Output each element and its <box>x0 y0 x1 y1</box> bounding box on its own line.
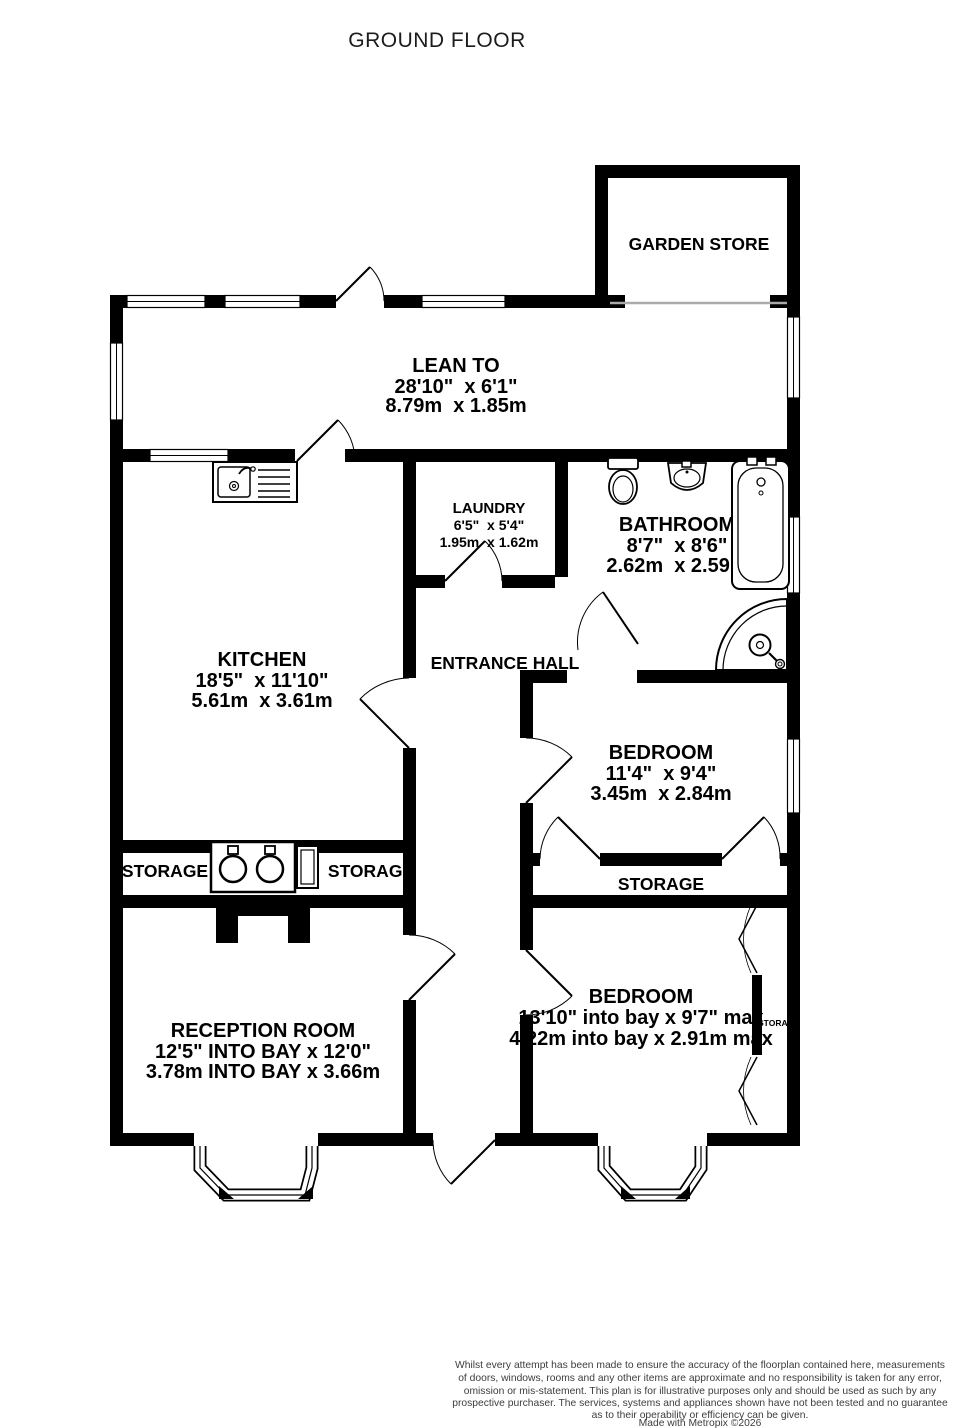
footer-credit: Made with Metropix ©2026 <box>639 1418 762 1428</box>
room-label-bedroom-2: BEDROOM <box>589 986 693 1008</box>
room-label-garden-store: GARDEN STORE <box>629 234 770 254</box>
bedroom-bay-window <box>604 1146 701 1199</box>
window <box>150 450 228 462</box>
door-swing-reception <box>409 935 455 1000</box>
window <box>422 296 505 308</box>
room-label-storage-landing: STORAGE <box>618 874 704 894</box>
door-swing-bedroom-1 <box>526 738 572 803</box>
room-dim-bathroom-imperial: 8'7" x 8'6" <box>627 535 728 557</box>
room-label-storage-left: STORAGE <box>122 861 208 881</box>
window <box>111 343 123 420</box>
toilet-icon <box>608 458 638 504</box>
door-swing-storage-left <box>540 817 600 859</box>
room-label-bedroom-1: BEDROOM <box>609 742 713 764</box>
window <box>788 317 800 398</box>
room-dim-lean-to-metric: 8.79m x 1.85m <box>385 395 526 417</box>
page-title: GROUND FLOOR <box>348 29 526 52</box>
window <box>788 739 800 813</box>
fireplace-icon <box>216 907 310 943</box>
room-dim-bedroom-1-imperial: 11'4" x 9'4" <box>606 763 717 785</box>
bathtub-icon <box>732 457 789 589</box>
room-dim-bedroom-2-imperial: 13'10" into bay x 9'7" max <box>518 1007 763 1029</box>
window <box>127 296 205 308</box>
room-dim-reception-imperial: 12'5" INTO BAY x 12'0" <box>155 1041 371 1063</box>
room-label-bathroom: BATHROOM <box>619 514 735 536</box>
room-dim-laundry-metric: 1.95m x 1.62m <box>440 534 539 550</box>
door-swing-bedroom-2 <box>526 950 572 1015</box>
footer-line-3: omission or mis-statement. This plan is … <box>464 1386 937 1397</box>
room-label-storage-closet: STORAGE <box>758 1018 800 1028</box>
door-swing-bathroom <box>577 592 638 650</box>
cooker-icon <box>211 842 318 892</box>
footer-line-4: prospective purchaser. The services, sys… <box>452 1398 948 1409</box>
shower-icon <box>716 599 787 670</box>
room-dim-bedroom-2-metric: 4.22m into bay x 2.91m max <box>509 1028 772 1050</box>
room-label-entrance-hall: ENTRANCE HALL <box>431 653 580 673</box>
room-label-kitchen: KITCHEN <box>218 649 307 671</box>
bifold-door-bottom <box>739 1057 757 1125</box>
room-dim-kitchen-metric: 5.61m x 3.61m <box>191 690 332 712</box>
room-dim-bedroom-1-metric: 3.45m x 2.84m <box>590 783 731 805</box>
footer-line-1: Whilst every attempt has been made to en… <box>455 1360 945 1371</box>
sink-icon <box>213 462 297 502</box>
floorplan-svg: GROUND FLOOR GARDEN STORE LEAN TO 28'10"… <box>0 0 980 1428</box>
room-dim-bathroom-metric: 2.62m x 2.59m <box>606 555 747 577</box>
window <box>225 296 300 308</box>
room-label-storage-right: STORAGE <box>328 861 414 881</box>
basin-icon <box>668 461 706 490</box>
door-swing-lean-to-exterior <box>336 267 384 301</box>
room-label-reception: RECEPTION ROOM <box>171 1020 355 1042</box>
room-label-lean-to: LEAN TO <box>412 355 499 377</box>
door-swing-kitchen-hall <box>360 678 409 748</box>
room-label-laundry: LAUNDRY <box>453 500 526 517</box>
front-door-swing <box>433 1140 495 1184</box>
reception-bay-window <box>200 1146 313 1199</box>
footer-line-2: of doors, windows, rooms and any other i… <box>458 1373 942 1384</box>
floorplan-page: GROUND FLOOR GARDEN STORE LEAN TO 28'10"… <box>0 0 980 1428</box>
room-dim-kitchen-imperial: 18'5" x 11'10" <box>195 670 328 692</box>
bifold-door-top <box>739 905 757 973</box>
room-dim-laundry-imperial: 6'5" x 5'4" <box>454 517 525 533</box>
footer-disclaimer: Whilst every attempt has been made to en… <box>452 1360 948 1428</box>
room-dim-reception-metric: 3.78m INTO BAY x 3.66m <box>146 1061 380 1083</box>
door-swing-storage-right <box>722 817 780 859</box>
